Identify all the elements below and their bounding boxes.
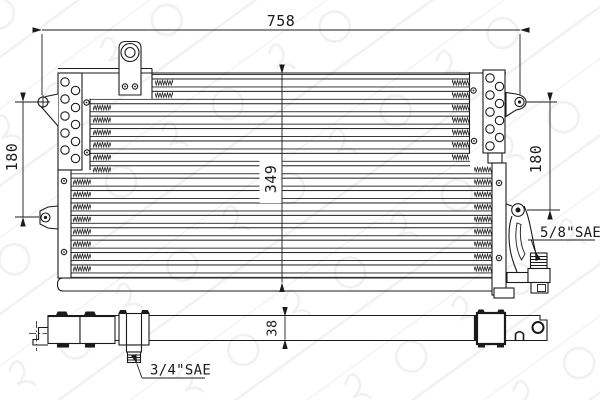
left-side-channel	[58, 170, 71, 278]
technical-drawing-page: 758 180 349 180 38 5/8"SAE	[0, 0, 600, 400]
dim-label-height-core: 349	[262, 165, 280, 194]
dim-label-width: 758	[267, 12, 296, 30]
dim-label-height-left: 180	[3, 143, 21, 172]
dim-label-depth: 38	[265, 319, 281, 336]
dim-label-height-right: 180	[527, 145, 545, 174]
fitting-label-5-8-sae: 5/8"SAE	[540, 225, 600, 241]
left-receiver-plate	[58, 73, 82, 170]
fitting-label-3-4-sae: 3/4"SAE	[150, 363, 211, 379]
condenser-technical-drawing: 758 180 349 180 38 5/8"SAE	[0, 0, 600, 400]
sae-fitting-5-8	[531, 253, 548, 269]
bottom-left-blocks	[48, 312, 115, 347]
left-lower-mounting-tab	[40, 206, 58, 229]
top-mounting-bracket	[119, 42, 141, 96]
